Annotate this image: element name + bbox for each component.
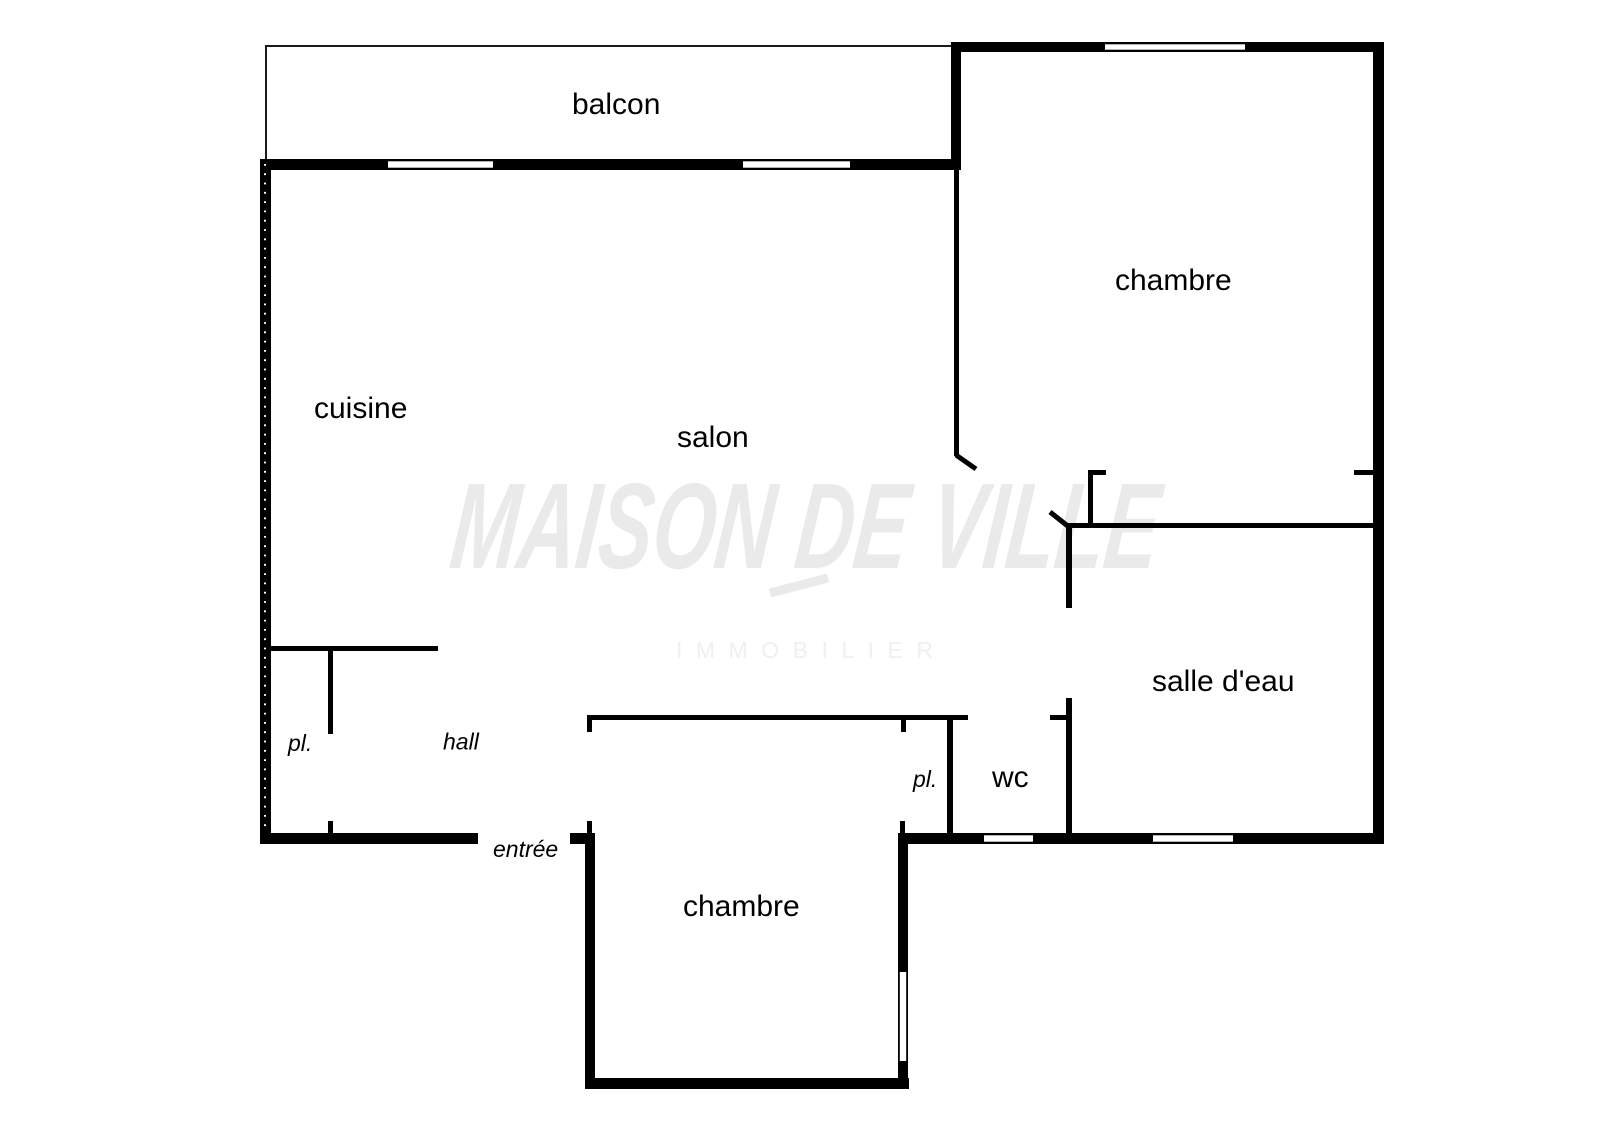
svg-text:chambre: chambre	[1115, 264, 1232, 297]
svg-text:entrée: entrée	[493, 836, 558, 862]
svg-text:balcon: balcon	[572, 88, 660, 121]
svg-text:salle d'eau: salle d'eau	[1152, 665, 1295, 698]
svg-text:chambre: chambre	[683, 890, 800, 923]
svg-text:cuisine: cuisine	[314, 392, 407, 425]
svg-text:pl.: pl.	[912, 766, 937, 792]
svg-text:hall: hall	[443, 729, 480, 755]
svg-text:wc: wc	[991, 761, 1029, 794]
svg-text:salon: salon	[677, 421, 749, 454]
svg-text:pl.: pl.	[287, 730, 312, 756]
svg-text:MAISON DE VILLE: MAISON DE VILLE	[445, 457, 1169, 594]
svg-text:IMMOBILIER: IMMOBILIER	[676, 637, 946, 663]
